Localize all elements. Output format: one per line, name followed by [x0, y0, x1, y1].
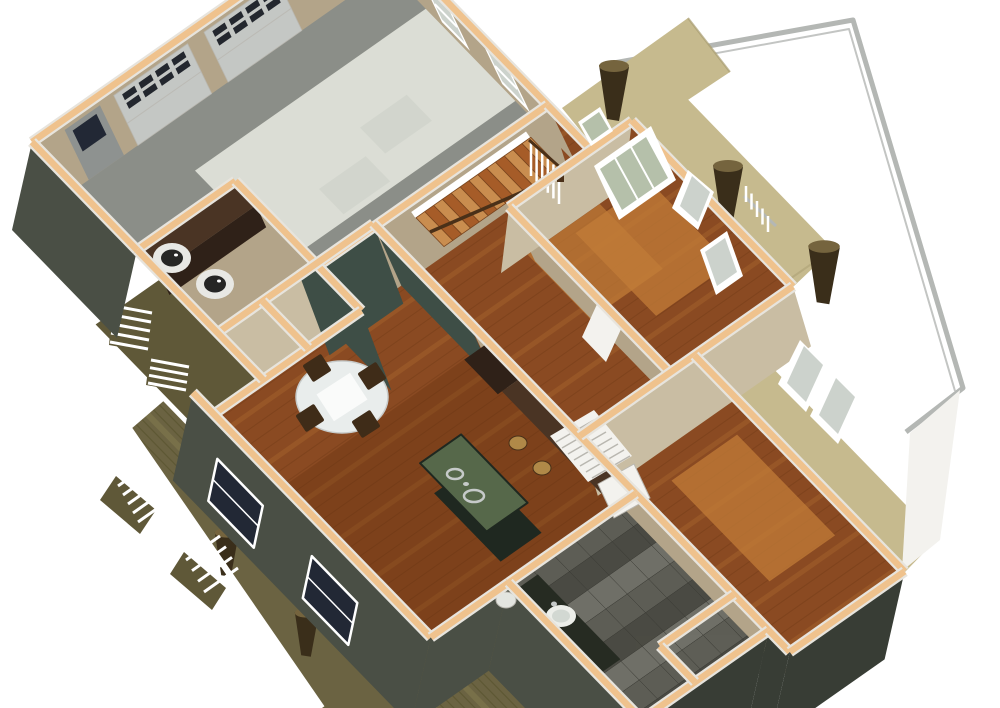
island-faucet	[463, 482, 469, 486]
balcony-planter-3	[808, 246, 840, 305]
bar-stool-1	[509, 436, 527, 450]
floorplan-render-stage	[0, 0, 1000, 708]
dryer-lid	[204, 276, 226, 293]
balcony-planter-3-top	[808, 240, 840, 253]
bar-stool-2	[533, 461, 551, 475]
deck-stairs-upper	[100, 476, 156, 534]
se-deck-fascia	[902, 390, 960, 571]
floorplan-3d-viewport[interactable]	[0, 0, 1000, 708]
balcony-planter-1-top	[599, 60, 629, 72]
deck-stairs-upper-tread-0	[118, 462, 152, 486]
washer-lid	[161, 250, 183, 267]
vanity-faucet	[551, 602, 557, 607]
vanity-sink-bowl	[552, 610, 570, 623]
deck-stairs-upper-tread-1	[123, 471, 157, 495]
dryer-knob	[217, 280, 221, 283]
washer-knob	[174, 254, 178, 257]
balcony-planter-2-top	[713, 160, 743, 172]
